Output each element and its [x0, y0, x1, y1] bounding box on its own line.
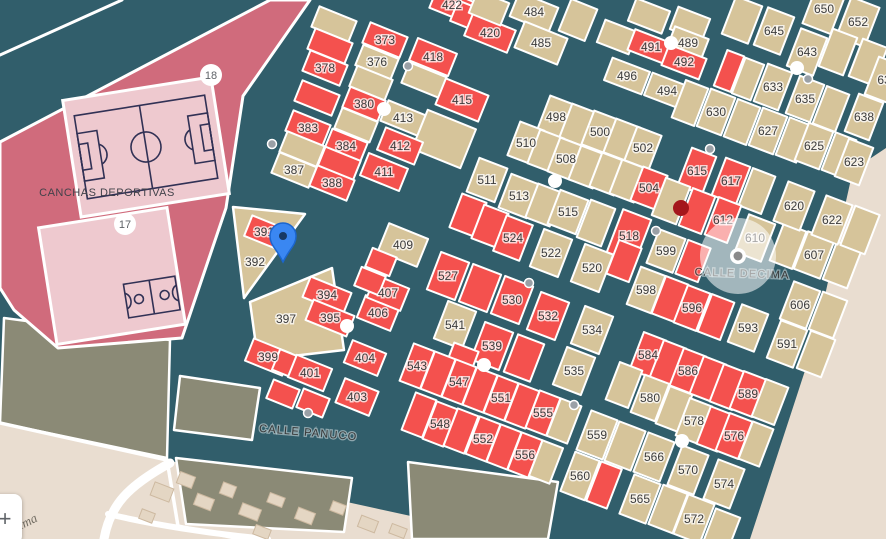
- parcel-label-380: 380: [354, 97, 374, 111]
- field-surface: [39, 208, 186, 345]
- parcel-label-384: 384: [336, 139, 356, 153]
- junction-dot-white: [675, 434, 689, 448]
- junction-dot-gray: [706, 145, 715, 154]
- block-olive-2[interactable]: [174, 376, 260, 440]
- area-badge-18: 18: [200, 64, 222, 86]
- parcel-label-515: 515: [558, 205, 578, 219]
- parcel-label-409: 409: [393, 238, 413, 252]
- parcel-label-518: 518: [619, 229, 639, 243]
- junction-dot-gray: [404, 62, 413, 71]
- parcel-label-534: 534: [582, 323, 602, 337]
- parcel-label-620: 620: [784, 199, 804, 213]
- map-canvas[interactable]: 3733763783803833843873884184154134124114…: [0, 0, 886, 539]
- parcel-label-578: 578: [684, 414, 704, 428]
- parcel-label-532: 532: [538, 309, 558, 323]
- parcel-label-527: 527: [438, 269, 458, 283]
- parcel-label-485: 485: [531, 36, 551, 50]
- parcel-label-388: 388: [322, 176, 342, 190]
- junction-dot-white: [548, 174, 562, 188]
- parcel-label-489: 489: [678, 36, 698, 50]
- parcel-label-511: 511: [477, 173, 496, 187]
- parcel-label-508: 508: [556, 152, 576, 166]
- parcel-label-535: 535: [564, 364, 584, 378]
- parcel-label-376: 376: [367, 55, 387, 69]
- parcel-label-403: 403: [347, 390, 367, 404]
- parcel-label-496: 496: [617, 69, 637, 83]
- parcel-label-617: 617: [721, 174, 741, 188]
- parcel-label-498: 498: [546, 110, 566, 124]
- area-name-label: CANCHAS DEPORTIVAS: [39, 187, 175, 199]
- zoom-in-button[interactable]: +: [0, 494, 22, 539]
- parcel-label-412: 412: [390, 139, 410, 153]
- parcel-label-630: 630: [706, 105, 726, 119]
- parcel-label-580: 580: [640, 391, 660, 405]
- parcel-label-407: 407: [378, 286, 398, 300]
- junction-dot-white: [377, 102, 391, 116]
- parcel-label-598: 598: [636, 283, 656, 297]
- parcel-label-615: 615: [687, 164, 707, 178]
- parcel-label-650: 650: [814, 2, 834, 16]
- junction-dot-white: [340, 319, 354, 333]
- junction-dot-gray: [268, 140, 277, 149]
- parcel-label-539: 539: [482, 339, 502, 353]
- parcel-label-504: 504: [639, 181, 659, 195]
- parcel-label-543: 543: [407, 359, 427, 373]
- parcel-label-589: 589: [738, 387, 758, 401]
- parcel-label-520: 520: [582, 261, 602, 275]
- parcel-label-625: 625: [804, 139, 824, 153]
- parcel-label-576: 576: [724, 429, 744, 443]
- parcel-label-584: 584: [638, 348, 658, 362]
- parcel-label-500: 500: [590, 125, 610, 139]
- parcel-label-392: 392: [245, 255, 265, 269]
- map-viewport[interactable]: 3733763783803833843873884184154134124114…: [0, 0, 886, 539]
- parcel-label-510: 510: [516, 136, 536, 150]
- parcel-label-530: 530: [502, 293, 522, 307]
- parcel-label-422: 422: [442, 0, 462, 12]
- parcel-label-633: 633: [763, 80, 783, 94]
- sports-court-field[interactable]: [39, 208, 186, 345]
- parcel-label-623: 623: [844, 155, 864, 169]
- parcel-label-406: 406: [368, 306, 388, 320]
- parcel-label-502: 502: [633, 141, 653, 155]
- parcel-label-556: 556: [515, 448, 535, 462]
- parcel-label-622: 622: [822, 213, 842, 227]
- parcel-label-570: 570: [678, 463, 698, 477]
- parcel-label-418: 418: [423, 50, 443, 64]
- parcel-label-599: 599: [656, 244, 676, 258]
- selected-location-highlight: [700, 218, 776, 294]
- parcel-label-593: 593: [738, 321, 758, 335]
- parcel-label-404: 404: [355, 351, 375, 365]
- parcel-label-494: 494: [657, 84, 677, 98]
- highlight-center-dot: [734, 252, 743, 261]
- area-badge-17: 17: [114, 213, 136, 235]
- parcel-label-397: 397: [276, 312, 296, 326]
- parcel-label-627: 627: [758, 124, 778, 138]
- parcel-label-652: 652: [848, 15, 868, 29]
- parcel-label-574: 574: [714, 477, 734, 491]
- parcel-label-63: 63: [877, 73, 886, 87]
- parcel-label-566: 566: [644, 450, 664, 464]
- parcel-label-387: 387: [284, 163, 304, 177]
- parcel-label-541: 541: [445, 318, 465, 332]
- parcel-label-547: 547: [449, 375, 469, 389]
- parcel-label-572: 572: [684, 512, 704, 526]
- parcel-label-394: 394: [317, 288, 337, 302]
- parcel-label-560: 560: [570, 469, 590, 483]
- parcel-label-413: 413: [393, 111, 413, 125]
- parcel-label-555: 555: [533, 406, 553, 420]
- parcel-label-513: 513: [509, 189, 529, 203]
- parcel-label-484: 484: [524, 5, 544, 19]
- parcel-label-395: 395: [320, 311, 340, 325]
- parcel-label-378: 378: [315, 61, 335, 75]
- junction-dot-white: [790, 61, 804, 75]
- parcel-label-645: 645: [764, 24, 784, 38]
- parcel-label-383: 383: [298, 121, 318, 135]
- badge-number: 18: [205, 70, 217, 82]
- parcel-label-522: 522: [541, 246, 561, 260]
- badge-number: 17: [119, 219, 131, 231]
- parcel-label-491: 491: [641, 40, 661, 54]
- junction-dot-white: [477, 358, 491, 372]
- parcel-label-411: 411: [374, 165, 393, 179]
- parcel-label-559: 559: [587, 428, 607, 442]
- parcel-label-524: 524: [503, 231, 523, 245]
- parcel-label-643: 643: [797, 45, 817, 59]
- junction-dot-gray: [804, 75, 813, 84]
- parcel-label-586: 586: [678, 364, 698, 378]
- poi-marker-red-dot[interactable]: [673, 200, 689, 216]
- parcel-label-565: 565: [630, 492, 650, 506]
- parcel-label-420: 420: [480, 26, 500, 40]
- junction-dot-gray: [570, 401, 579, 410]
- parcel-label-638: 638: [854, 110, 874, 124]
- parcel-label-606: 606: [790, 298, 810, 312]
- parcel-label-552: 552: [473, 432, 493, 446]
- parcel-label-548: 548: [430, 417, 450, 431]
- parcel-label-596: 596: [682, 301, 702, 315]
- parcel-label-591: 591: [777, 337, 797, 351]
- parcel-label-607: 607: [804, 248, 824, 262]
- parcel-label-399: 399: [258, 350, 278, 364]
- parcel-label-401: 401: [300, 366, 320, 380]
- junction-dot-gray: [652, 227, 661, 236]
- junction-dot-white: [664, 36, 678, 50]
- parcel-label-373: 373: [375, 33, 395, 47]
- junction-dot-gray: [525, 279, 534, 288]
- parcel-label-635: 635: [795, 92, 815, 106]
- pin-center-dot: [279, 232, 287, 240]
- junction-dot-gray: [304, 409, 313, 418]
- parcel-label-415: 415: [452, 93, 472, 107]
- parcel-label-492: 492: [674, 55, 694, 69]
- parcel-label-551: 551: [491, 391, 511, 405]
